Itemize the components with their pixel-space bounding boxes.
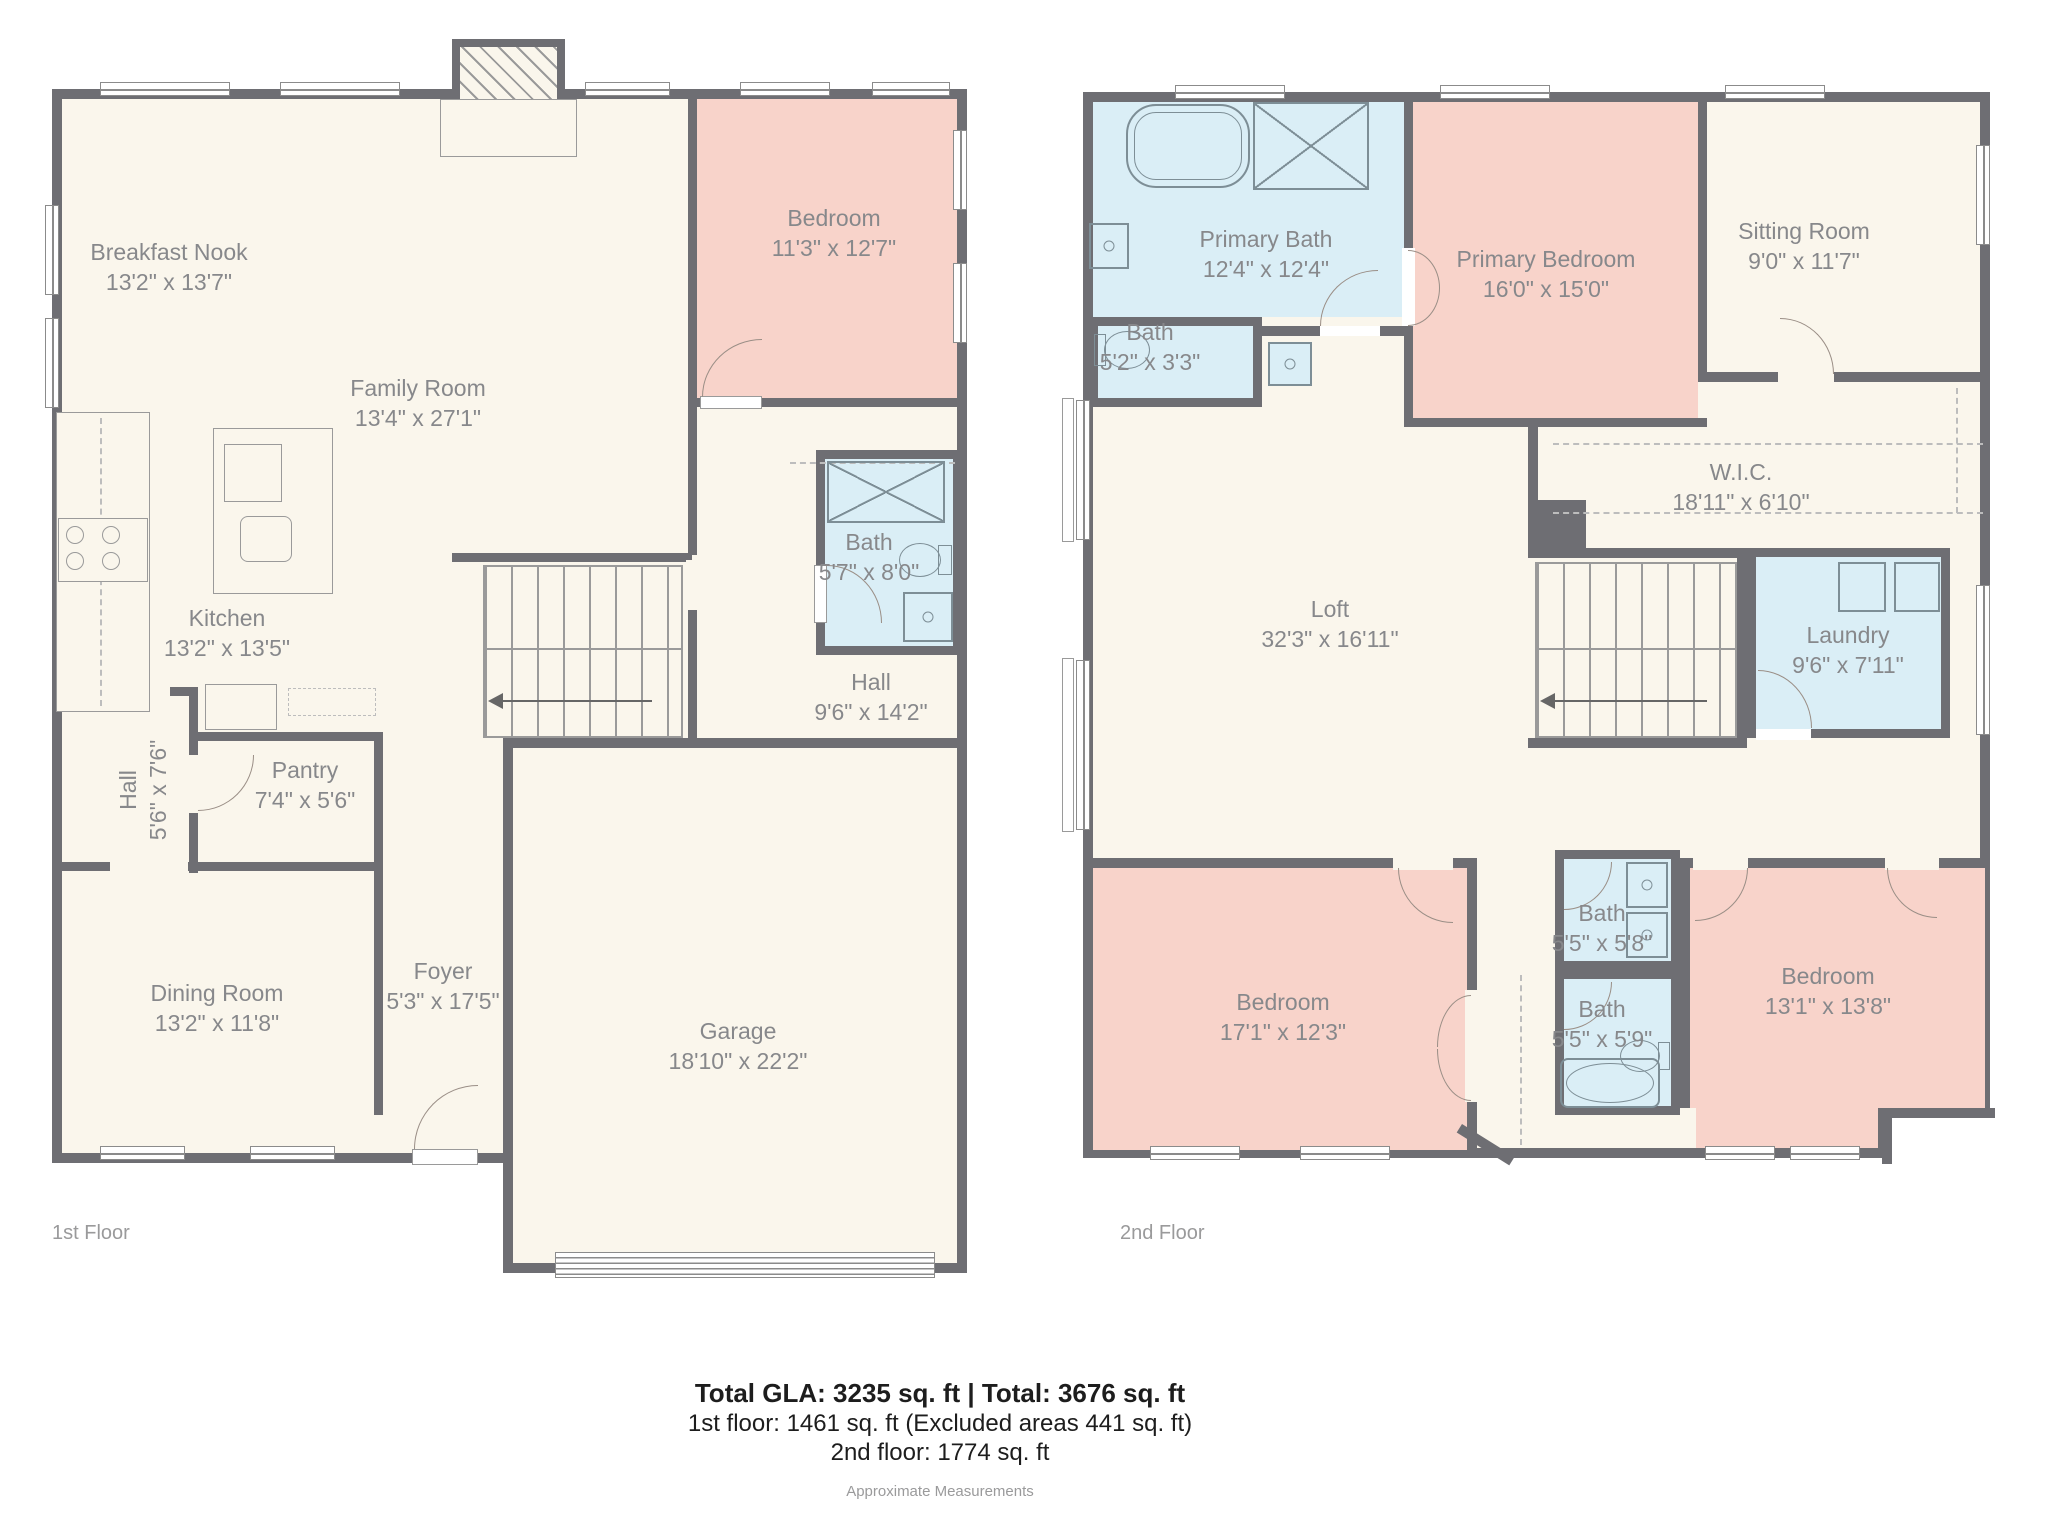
room-dims: 5'2" x 3'3" xyxy=(1100,347,1201,377)
closet-rod-dash xyxy=(1520,975,1522,1145)
fridge xyxy=(205,684,277,730)
wall xyxy=(1680,868,1690,1108)
room-name: Primary Bath xyxy=(1200,224,1333,254)
room-dims: 17'1" x 12'3" xyxy=(1220,1017,1346,1047)
stairs-arrowhead xyxy=(488,693,503,709)
closet-rod-dash xyxy=(1956,388,1958,513)
room-label-pantry: Pantry 7'4" x 5'6" xyxy=(255,755,356,815)
room-label-bedroom-1f: Bedroom 11'3" x 12'7" xyxy=(772,203,896,263)
window xyxy=(100,82,230,96)
wall xyxy=(1528,548,1747,558)
cabinet-dashed xyxy=(288,688,376,716)
window xyxy=(1150,1146,1240,1160)
wall xyxy=(52,862,383,871)
window xyxy=(585,82,670,96)
room-label-primary-bedroom: Primary Bedroom 16'0" x 15'0" xyxy=(1457,244,1636,304)
window xyxy=(1300,1146,1390,1160)
window xyxy=(740,82,830,96)
room-name: Family Room xyxy=(350,373,485,403)
window xyxy=(953,263,967,343)
room-name: W.I.C. xyxy=(1672,457,1809,487)
room-name: Bath xyxy=(1552,994,1653,1024)
door-slab xyxy=(412,1149,478,1165)
wall xyxy=(194,732,383,741)
room-dims: 16'0" x 15'0" xyxy=(1457,274,1636,304)
burner-icon xyxy=(102,526,120,544)
room-label-foyer: Foyer 5'3" x 17'5" xyxy=(386,956,499,1016)
wall xyxy=(1404,418,1707,427)
wall xyxy=(1528,738,1747,748)
shower-icon xyxy=(1253,102,1369,190)
burner-icon xyxy=(66,552,84,570)
window xyxy=(250,1146,335,1160)
door-opening xyxy=(1756,729,1811,740)
room-dims: 5'6" x 7'6" xyxy=(143,740,173,841)
room-name: Bath xyxy=(1100,317,1201,347)
window xyxy=(953,130,967,210)
room-label-breakfast-nook: Breakfast Nook 13'2" x 13'7" xyxy=(90,237,247,297)
window xyxy=(1076,400,1090,540)
wall xyxy=(1698,372,1990,382)
room-name: Foyer xyxy=(386,956,499,986)
room-name: Garage xyxy=(669,1016,808,1046)
room-name: Dining Room xyxy=(151,978,284,1008)
room-label-primary-bath: Primary Bath 12'4" x 12'4" xyxy=(1200,224,1333,284)
room-dims: 11'3" x 12'7" xyxy=(772,233,896,263)
room-label-dining-room: Dining Room 13'2" x 11'8" xyxy=(151,978,284,1038)
room-dims: 12'4" x 12'4" xyxy=(1200,254,1333,284)
floor1-garage-outline xyxy=(503,738,967,1273)
room-dims: 5'3" x 17'5" xyxy=(386,986,499,1016)
bathtub-inner xyxy=(1134,112,1242,180)
window xyxy=(872,82,950,96)
summary-first-floor: 1st floor: 1461 sq. ft (Excluded areas 4… xyxy=(0,1409,1964,1438)
garage-door xyxy=(555,1252,935,1278)
room-dims: 5'5" x 5'8" xyxy=(1552,928,1653,958)
room-dims: 13'4" x 27'1" xyxy=(350,403,485,433)
room-name: Breakfast Nook xyxy=(90,237,247,267)
room-name: Pantry xyxy=(255,755,356,785)
room-label-hall-1f: Hall 9'6" x 14'2" xyxy=(814,667,927,727)
room-name: Kitchen xyxy=(164,603,290,633)
door-opening xyxy=(686,560,699,610)
door-opening xyxy=(372,1115,385,1153)
burner-icon xyxy=(66,526,84,544)
room-dims: 18'10" x 22'2" xyxy=(669,1046,808,1076)
room-label-bedroom17: Bedroom 17'1" x 12'3" xyxy=(1220,987,1346,1047)
window xyxy=(1705,1146,1775,1160)
room-name: Primary Bedroom xyxy=(1457,244,1636,274)
summary-footnote: Approximate Measurements xyxy=(0,1483,1964,1500)
stairs-landing-line xyxy=(483,648,683,650)
window xyxy=(45,205,59,295)
shower-icon xyxy=(827,461,945,523)
wall xyxy=(688,610,697,738)
closet-rod-dash xyxy=(1553,443,1983,445)
wall xyxy=(688,407,697,555)
door-opening xyxy=(110,860,188,873)
room-label-garage: Garage 18'10" x 22'2" xyxy=(669,1016,808,1076)
room-name: Bedroom xyxy=(772,203,896,233)
door-slab xyxy=(700,396,762,409)
stairs-arrowhead xyxy=(1540,693,1555,709)
room-label-bath58: Bath 5'5" x 5'8" xyxy=(1552,898,1653,958)
room-dims: 9'0" x 11'7" xyxy=(1738,246,1870,276)
room-name: Loft xyxy=(1261,594,1398,624)
room-label-bath59: Bath 5'5" x 5'9" xyxy=(1552,994,1653,1054)
kitchen-island-sink xyxy=(240,516,292,562)
burner-icon xyxy=(102,552,120,570)
room-label-loft: Loft 32'3" x 16'11" xyxy=(1261,594,1398,654)
window-bay xyxy=(1062,398,1074,542)
room-label-hall-small: Hall 5'6" x 7'6" xyxy=(113,740,173,841)
window xyxy=(1725,85,1825,99)
stairs-landing-line xyxy=(1535,648,1737,650)
room-name: Bedroom xyxy=(1765,961,1891,991)
room-label-bedroom13: Bedroom 13'1" x 13'8" xyxy=(1765,961,1891,1021)
window xyxy=(280,82,400,96)
window xyxy=(1175,85,1285,99)
stairs-arrow xyxy=(1552,700,1707,702)
dryer-icon xyxy=(1894,562,1940,612)
room-name: Bath xyxy=(1552,898,1653,928)
room-label-family-room: Family Room 13'4" x 27'1" xyxy=(350,373,485,433)
wall xyxy=(1698,92,1707,381)
floor1-caption: 1st Floor xyxy=(52,1222,130,1245)
room-name: Hall xyxy=(814,667,927,697)
door-opening xyxy=(1320,326,1380,336)
room-dims: 13'2" x 13'5" xyxy=(164,633,290,663)
room-name: Sitting Room xyxy=(1738,216,1870,246)
floorplan-canvas: Breakfast Nook 13'2" x 13'7" Family Room… xyxy=(0,0,2048,1536)
wall xyxy=(688,99,697,398)
wall xyxy=(452,553,692,562)
window xyxy=(1976,585,1990,735)
summary-total-gla: Total GLA: 3235 sq. ft | Total: 3676 sq.… xyxy=(0,1378,1964,1409)
room-label-wic: W.I.C. 18'11" x 6'10" xyxy=(1672,457,1809,517)
room-name: Bath xyxy=(819,527,920,557)
room-name: Laundry xyxy=(1792,620,1904,650)
fireplace-hearth xyxy=(440,99,577,157)
room-dims: 7'4" x 5'6" xyxy=(255,785,356,815)
room-dims: 9'6" x 7'11" xyxy=(1792,650,1904,680)
floor2-bedroom13-ext-fill xyxy=(1696,1108,1878,1148)
floor2-caption: 2nd Floor xyxy=(1120,1222,1205,1245)
room-dims: 9'6" x 14'2" xyxy=(814,697,927,727)
room-label-kitchen: Kitchen 13'2" x 13'5" xyxy=(164,603,290,663)
room-label-small-bath: Bath 5'2" x 3'3" xyxy=(1100,317,1201,377)
room-label-bath-1f: Bath 5'7" x 8'0" xyxy=(819,527,920,587)
room-dims: 13'2" x 11'8" xyxy=(151,1008,284,1038)
room-name: Bedroom xyxy=(1220,987,1346,1017)
room-dims: 18'11" x 6'10" xyxy=(1672,487,1809,517)
summary-second-floor: 2nd floor: 1774 sq. ft xyxy=(0,1438,1964,1467)
stairs-arrow xyxy=(500,700,652,702)
bathtub-inner xyxy=(1566,1063,1654,1103)
window xyxy=(1976,145,1990,245)
stairs xyxy=(1535,562,1737,738)
room-dims: 13'1" x 13'8" xyxy=(1765,991,1891,1021)
kitchen-island-cooktop xyxy=(224,444,282,502)
washer-icon xyxy=(1838,562,1886,612)
room-label-sitting-room: Sitting Room 9'0" x 11'7" xyxy=(1738,216,1870,276)
stairs xyxy=(483,565,683,738)
room-dims: 32'3" x 16'11" xyxy=(1261,624,1398,654)
sink-icon xyxy=(903,592,953,642)
building-notch xyxy=(1882,1108,1995,1164)
room-dims: 5'7" x 8'0" xyxy=(819,557,920,587)
summary-block: Total GLA: 3235 sq. ft | Total: 3676 sq.… xyxy=(0,1378,1964,1500)
room-label-laundry: Laundry 9'6" x 7'11" xyxy=(1792,620,1904,680)
wall xyxy=(374,732,383,1153)
room-dims: 13'2" x 13'7" xyxy=(90,267,247,297)
room-name: Hall xyxy=(113,740,143,841)
window xyxy=(45,318,59,408)
wall xyxy=(1404,92,1413,248)
wall xyxy=(1404,326,1413,426)
window-bay xyxy=(1062,658,1074,832)
window xyxy=(1440,85,1550,99)
window xyxy=(100,1146,185,1160)
window xyxy=(1790,1146,1860,1160)
room-dims: 5'5" x 5'9" xyxy=(1552,1024,1653,1054)
wall xyxy=(1737,548,1747,748)
sink-icon xyxy=(1268,342,1312,386)
window xyxy=(1076,660,1090,830)
sink-icon xyxy=(1089,223,1129,269)
